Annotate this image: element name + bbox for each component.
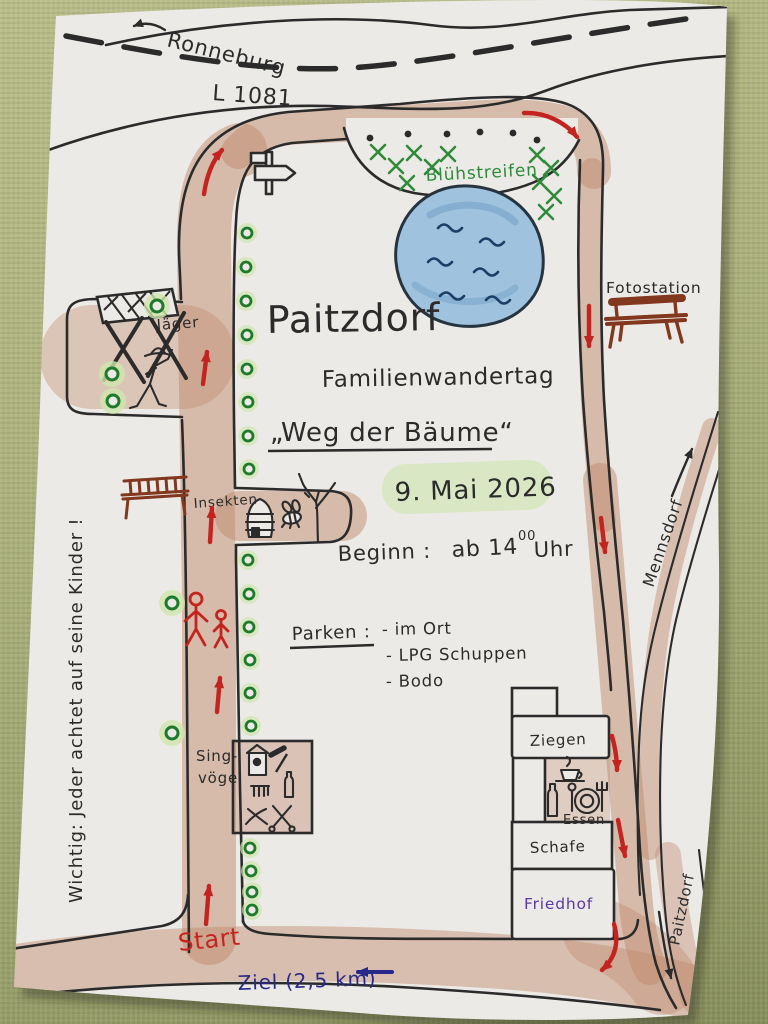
route-arrow bbox=[210, 508, 212, 542]
dot-marker bbox=[444, 131, 451, 138]
dot-marker bbox=[510, 130, 517, 137]
label-singvoegel-2: vögel bbox=[198, 769, 243, 787]
label-jaeger: Jäger bbox=[155, 313, 200, 334]
route-arrow bbox=[217, 678, 220, 712]
parken-item-3: - Bodo bbox=[386, 671, 444, 691]
dot-marker bbox=[534, 137, 541, 144]
title-date: 9. Mai 2026 bbox=[394, 472, 557, 508]
route-arrow bbox=[206, 886, 209, 924]
label-ziel: Ziel (2,5 km) bbox=[237, 966, 376, 995]
label-wichtig: Wichtig: Jeder achtet auf seine Kinder ! bbox=[66, 518, 87, 903]
begin-value: ab 14 bbox=[451, 535, 519, 563]
parken-item-2: - LPG Schuppen bbox=[386, 644, 528, 665]
label-fotostation: Fotostation bbox=[606, 279, 702, 297]
parken-label: Parken : bbox=[291, 621, 371, 645]
small-building bbox=[512, 688, 557, 717]
title-town: Paitzdorf bbox=[266, 295, 441, 342]
begin-label: Beginn : bbox=[337, 539, 431, 566]
hand-drawn-map: Ronneburg L 1081 Blühstreifen Fotostatio… bbox=[0, 0, 768, 1024]
label-singvoegel-1: Sing- bbox=[196, 747, 238, 765]
label-ziegen: Ziegen bbox=[530, 730, 587, 750]
label-schafe: Schafe bbox=[530, 837, 586, 857]
label-essen: Essen bbox=[563, 813, 605, 828]
label-friedhof: Friedhof bbox=[524, 895, 593, 913]
dot-marker bbox=[477, 129, 484, 136]
parken-item-1: - im Ort bbox=[382, 619, 452, 639]
dot-marker bbox=[367, 135, 374, 142]
dot-marker bbox=[405, 131, 412, 138]
title-route: „Weg der Bäume“ bbox=[270, 418, 514, 448]
begin-unit: Uhr bbox=[533, 537, 574, 562]
title-event: Familienwandertag bbox=[322, 363, 555, 393]
